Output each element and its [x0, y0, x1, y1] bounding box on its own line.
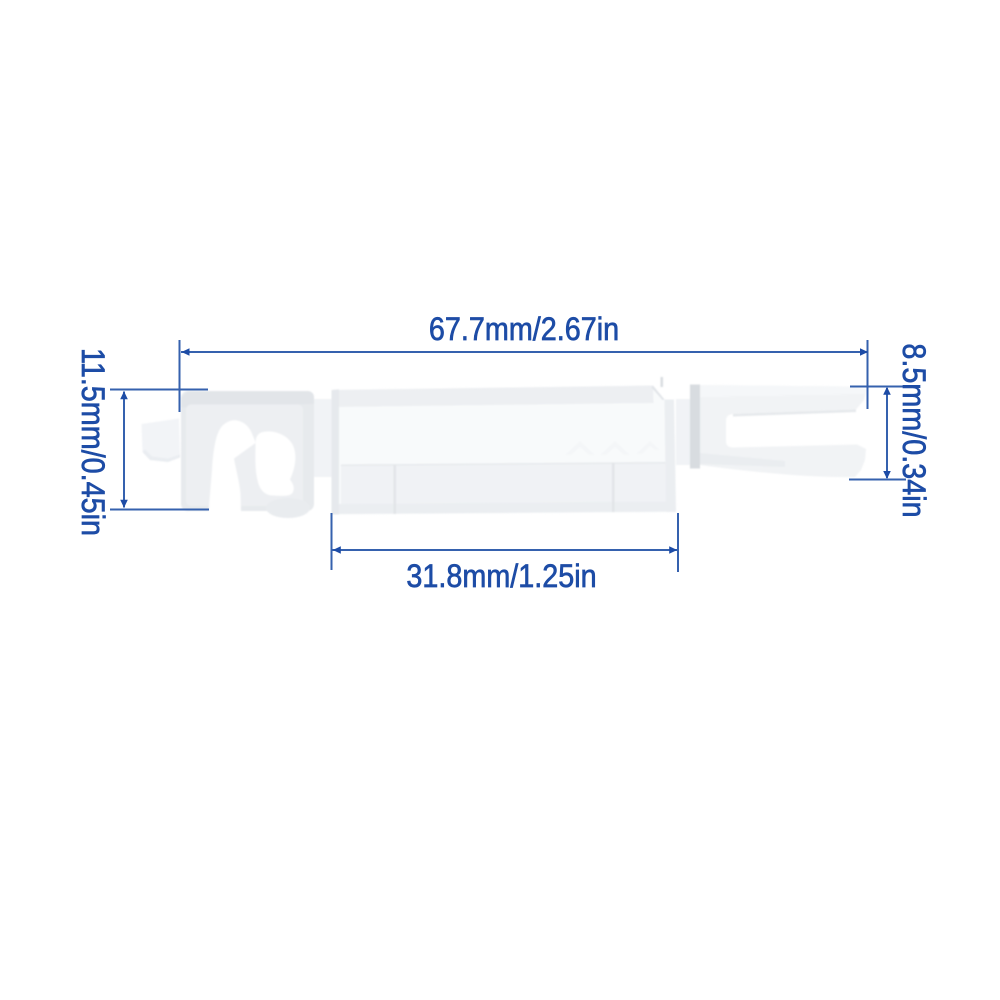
svg-text:67.7mm/2.67in: 67.7mm/2.67in: [429, 311, 619, 348]
svg-text:31.8mm/1.25in: 31.8mm/1.25in: [406, 557, 596, 594]
svg-text:8.5mm/0.34in: 8.5mm/0.34in: [895, 343, 932, 517]
svg-text:11.5mm/0.45in: 11.5mm/0.45in: [74, 348, 111, 536]
